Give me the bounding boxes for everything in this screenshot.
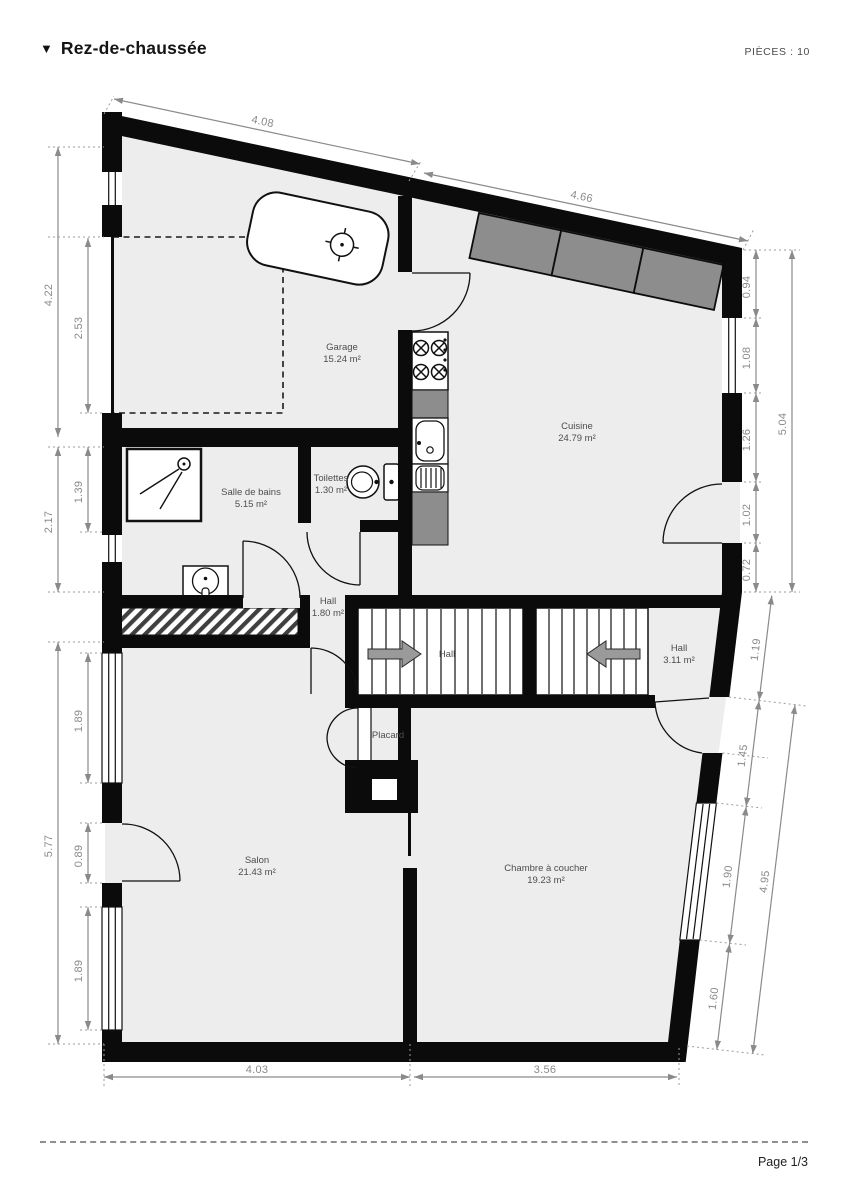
svg-text:21.43 m²: 21.43 m²: [238, 867, 276, 878]
dimension-label: 0.89: [73, 845, 85, 868]
kitchen-sink-icon: [412, 418, 448, 464]
staircase-right: [536, 608, 648, 695]
dimension-label: 5.77: [43, 835, 55, 858]
floor-plan-canvas: 4.22 2.53 2.17 1.39 5.77 1.89 0.89 1.89 …: [0, 0, 848, 1200]
window: [102, 172, 122, 205]
window: [102, 653, 122, 783]
svg-text:Cuisine: Cuisine: [561, 421, 593, 432]
dimension-label: 1.26: [741, 429, 753, 452]
svg-text:Toilettes: Toilettes: [314, 473, 349, 484]
dimension-label: 2.17: [43, 511, 55, 534]
dimension-label: 3.56: [534, 1064, 557, 1076]
dimension-label: 1.02: [741, 504, 753, 527]
wardrobe-door-leaf: [358, 704, 371, 764]
left-thin-wall: [94, 237, 114, 413]
gas-hob-icon: [412, 332, 448, 390]
dimension-label: 0.94: [741, 276, 753, 299]
dimension-label: 1.90: [721, 865, 736, 889]
dimension-label: 4.95: [758, 870, 773, 894]
dimension-label: 1.60: [707, 987, 722, 1011]
svg-text:Hall: Hall: [439, 649, 455, 660]
svg-text:19.23 m²: 19.23 m²: [527, 875, 565, 886]
room-label-garage: Garage15.24 m²: [323, 342, 361, 365]
shower-icon: [127, 449, 201, 521]
dimension-label: 5.04: [777, 413, 789, 436]
svg-text:5.15 m²: 5.15 m²: [235, 499, 267, 510]
svg-text:Garage: Garage: [326, 342, 358, 353]
window: [102, 907, 122, 1030]
svg-text:Hall: Hall: [671, 643, 687, 654]
countertop: [412, 390, 448, 418]
svg-text:Chambre à coucher: Chambre à coucher: [504, 863, 587, 874]
dimension-label: 1.89: [73, 960, 85, 983]
svg-text:Placard: Placard: [372, 730, 404, 741]
svg-text:24.79 m²: 24.79 m²: [558, 433, 596, 444]
dimension-label: 4.22: [43, 284, 55, 307]
page-number-label: Page 1/3: [758, 1155, 808, 1169]
svg-text:Salle de bains: Salle de bains: [221, 487, 281, 498]
svg-text:1.80 m²: 1.80 m²: [312, 608, 344, 619]
dimension-label: 0.72: [741, 559, 753, 582]
room-label-toilettes: Toilettes1.30 m²: [314, 473, 349, 496]
countertop: [412, 492, 448, 545]
room-label-placard: Placard: [372, 730, 404, 741]
dimension-label: 1.08: [741, 347, 753, 370]
toilet-icon: [347, 464, 399, 500]
svg-text:Salon: Salon: [245, 855, 269, 866]
svg-text:Hall: Hall: [320, 596, 336, 607]
dimension-label: 1.89: [73, 710, 85, 733]
svg-text:3.11 m²: 3.11 m²: [663, 655, 695, 666]
dimension-label: 1.45: [736, 744, 751, 768]
dimension-label: 1.39: [73, 481, 85, 504]
dimension-label: 4.03: [246, 1064, 269, 1076]
wall-niche: [372, 779, 397, 800]
dimension-label: 2.53: [73, 317, 85, 340]
room-label-cuisine: Cuisine24.79 m²: [558, 421, 596, 444]
draining-board-icon: [412, 464, 448, 492]
window: [102, 535, 122, 562]
kitchen-appliance-strip: [412, 332, 448, 545]
svg-text:1.30 m²: 1.30 m²: [315, 485, 347, 496]
window: [722, 318, 742, 393]
page-separator: [40, 1141, 808, 1143]
hatched-ramp: [102, 595, 310, 648]
dimension-label: 1.19: [749, 638, 764, 662]
dimension-label: 4.66: [569, 189, 594, 205]
svg-text:15.24 m²: 15.24 m²: [323, 354, 361, 365]
dimension-label: 4.08: [250, 114, 275, 130]
room-label-hall-stairs: Hall: [439, 649, 455, 660]
